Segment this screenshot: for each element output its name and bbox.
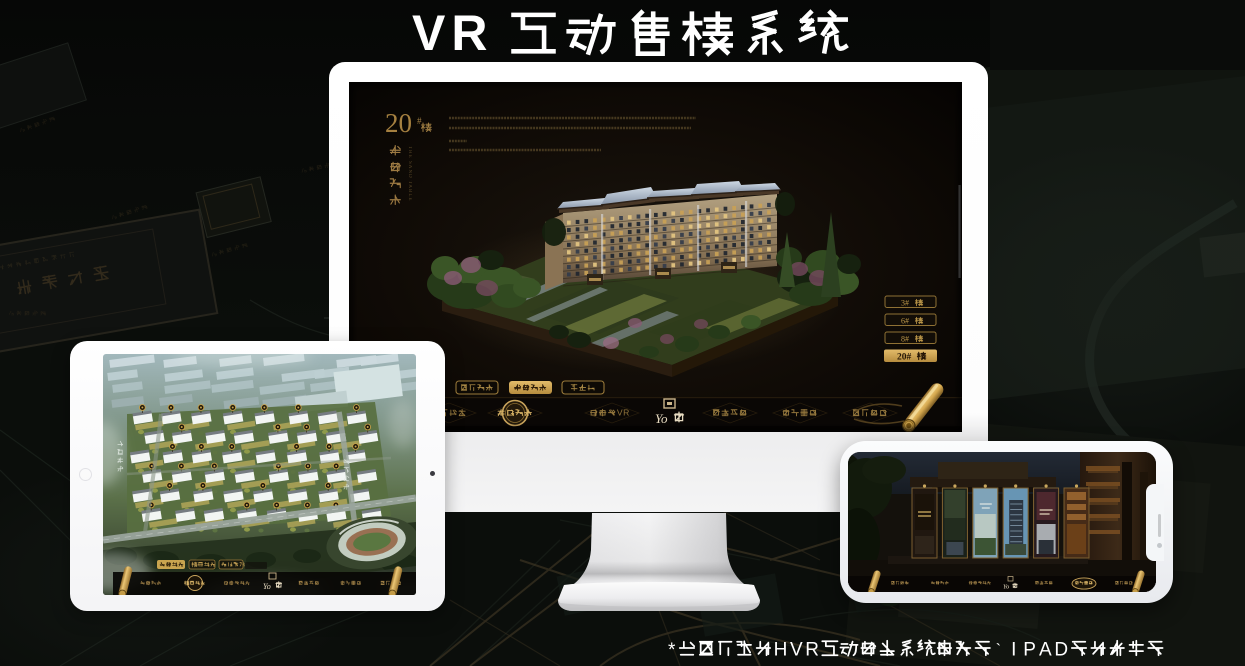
svg-text:6#: 6# <box>901 317 909 326</box>
svg-text:20: 20 <box>385 108 412 138</box>
svg-text:#: # <box>417 116 422 126</box>
svg-text:R: R <box>623 408 629 418</box>
svg-text:R: R <box>805 640 819 661</box>
svg-text:Yo: Yo <box>1003 584 1010 591</box>
svg-text:Yo: Yo <box>655 411 668 426</box>
svg-text:3#: 3# <box>901 299 909 308</box>
svg-text:Yo: Yo <box>263 582 271 591</box>
svg-text:I: I <box>1011 640 1016 661</box>
svg-text:A: A <box>1039 640 1052 661</box>
svg-text:8#: 8# <box>901 335 909 344</box>
svg-text:V: V <box>617 408 623 418</box>
svg-text:V: V <box>790 640 803 661</box>
svg-text:`: ` <box>996 642 1001 659</box>
svg-text:*: * <box>668 640 676 661</box>
svg-text:H: H <box>774 640 788 661</box>
svg-text:THE SAND TABLE: THE SAND TABLE <box>407 146 412 201</box>
svg-text:D: D <box>1054 640 1068 661</box>
svg-text:P: P <box>1023 640 1036 661</box>
svg-text:20#: 20# <box>897 353 912 363</box>
